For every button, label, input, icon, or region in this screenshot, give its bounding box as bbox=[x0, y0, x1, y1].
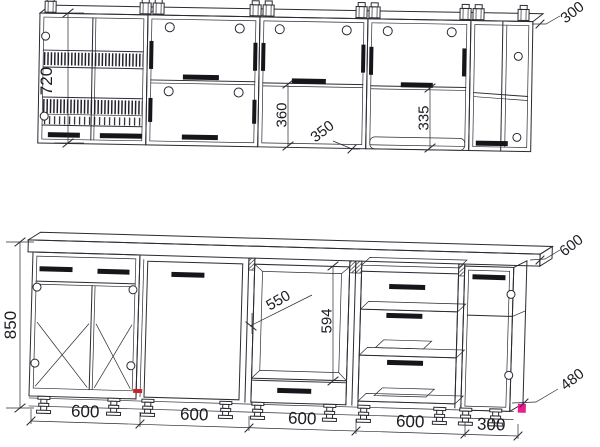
lift-hinge bbox=[361, 45, 365, 73]
door-handle bbox=[292, 78, 326, 84]
hinge-circle bbox=[235, 24, 244, 33]
hinge-circle bbox=[129, 286, 137, 294]
hinge-circle bbox=[234, 88, 243, 97]
base-cabinet-oven-niche bbox=[245, 258, 356, 405]
lift-hinge bbox=[261, 43, 265, 71]
dim-335-label: 335 bbox=[415, 105, 432, 130]
door-handle bbox=[476, 141, 508, 147]
dim-300-top-label: 300 bbox=[557, 0, 587, 27]
dim-open-height: 360 bbox=[273, 80, 293, 150]
hinge-circle bbox=[383, 26, 392, 35]
hinge-circle bbox=[447, 28, 456, 37]
dim-594-label: 594 bbox=[318, 308, 335, 333]
plate-rack-lower bbox=[42, 97, 142, 127]
countertop bbox=[28, 232, 552, 267]
door-handle bbox=[48, 132, 80, 138]
lift-hinge bbox=[369, 47, 373, 75]
hinge-circle bbox=[505, 371, 513, 379]
hinge-circle bbox=[31, 359, 39, 367]
door-handle bbox=[472, 274, 505, 280]
lift-hinge bbox=[462, 48, 466, 76]
drawer-handle bbox=[39, 266, 72, 272]
hinge-circle bbox=[33, 283, 41, 291]
red-mark bbox=[133, 389, 142, 393]
bottom-tray bbox=[370, 137, 465, 151]
door-handle bbox=[100, 133, 142, 139]
drawer-handle bbox=[97, 269, 129, 275]
lift-hinge bbox=[149, 41, 153, 69]
dim-lower-height: 335 bbox=[415, 84, 435, 152]
dim-run-2: 600 bbox=[180, 405, 209, 425]
door-swing-lines bbox=[35, 322, 132, 389]
dim-run-5: 300 bbox=[477, 415, 506, 435]
hinge-circle bbox=[275, 25, 284, 34]
hinge-circle bbox=[127, 362, 135, 370]
drawer-box bbox=[374, 388, 434, 398]
hinge-circle bbox=[342, 26, 351, 35]
plate-rack-upper bbox=[43, 50, 143, 69]
dim-bottom-run: 600 600 600 600 300 bbox=[27, 402, 522, 440]
dimension-annotations: 720 300 360 350 335 bbox=[1, 0, 588, 440]
dim-niche-width: 550 bbox=[246, 287, 312, 334]
hinge-circle bbox=[513, 133, 521, 141]
dim-850-label: 850 bbox=[1, 311, 20, 339]
hinge-circle bbox=[164, 87, 173, 96]
base-cabinet-drawers bbox=[352, 257, 467, 408]
dim-720-label: 720 bbox=[37, 67, 56, 95]
door-handle bbox=[401, 82, 433, 88]
lift-hinge bbox=[253, 43, 257, 71]
drawer-box bbox=[375, 340, 431, 350]
dim-350-label: 350 bbox=[307, 117, 337, 146]
door-handle bbox=[182, 134, 218, 140]
drawer-handle bbox=[386, 313, 422, 319]
lift-hinge bbox=[252, 100, 256, 124]
lift-hinge bbox=[148, 98, 152, 122]
base-cabinet-row bbox=[24, 232, 553, 428]
door-handle bbox=[171, 272, 204, 278]
drawer-handle bbox=[387, 360, 423, 366]
base-cabinet-doors bbox=[29, 252, 140, 399]
feet bbox=[37, 396, 503, 426]
door-handle bbox=[183, 75, 219, 81]
drawer-handle bbox=[277, 388, 311, 394]
hinge-circle bbox=[165, 23, 174, 32]
wall-cabinet-flip-doors bbox=[146, 15, 260, 147]
dim-niche-height: 594 bbox=[318, 262, 338, 385]
dim-run-3: 600 bbox=[288, 409, 317, 429]
dim-360-label: 360 bbox=[273, 102, 290, 127]
hinge-circle bbox=[514, 52, 522, 60]
drawer-handle bbox=[389, 284, 425, 290]
dim-run-1: 600 bbox=[71, 402, 100, 422]
dim-480-label: 480 bbox=[557, 365, 587, 394]
drawing-canvas: 720 300 360 350 335 bbox=[0, 0, 600, 447]
kitchen-elevation-drawing: 720 300 360 350 335 bbox=[0, 0, 600, 447]
dim-run-4: 600 bbox=[396, 412, 425, 432]
base-cabinet-appliance-door bbox=[136, 255, 243, 402]
hinge-circle bbox=[40, 112, 48, 120]
hinge-circle bbox=[507, 290, 515, 298]
dim-counter-depth: 600 bbox=[530, 231, 587, 264]
wall-cabinet-row bbox=[38, 0, 543, 152]
base-cabinet-end-300 bbox=[461, 259, 530, 413]
dim-600-depth-label: 600 bbox=[556, 231, 586, 260]
hinge-circle bbox=[42, 32, 50, 40]
dim-550-label: 550 bbox=[263, 287, 293, 314]
wall-cabinet-end-300 bbox=[469, 21, 533, 152]
